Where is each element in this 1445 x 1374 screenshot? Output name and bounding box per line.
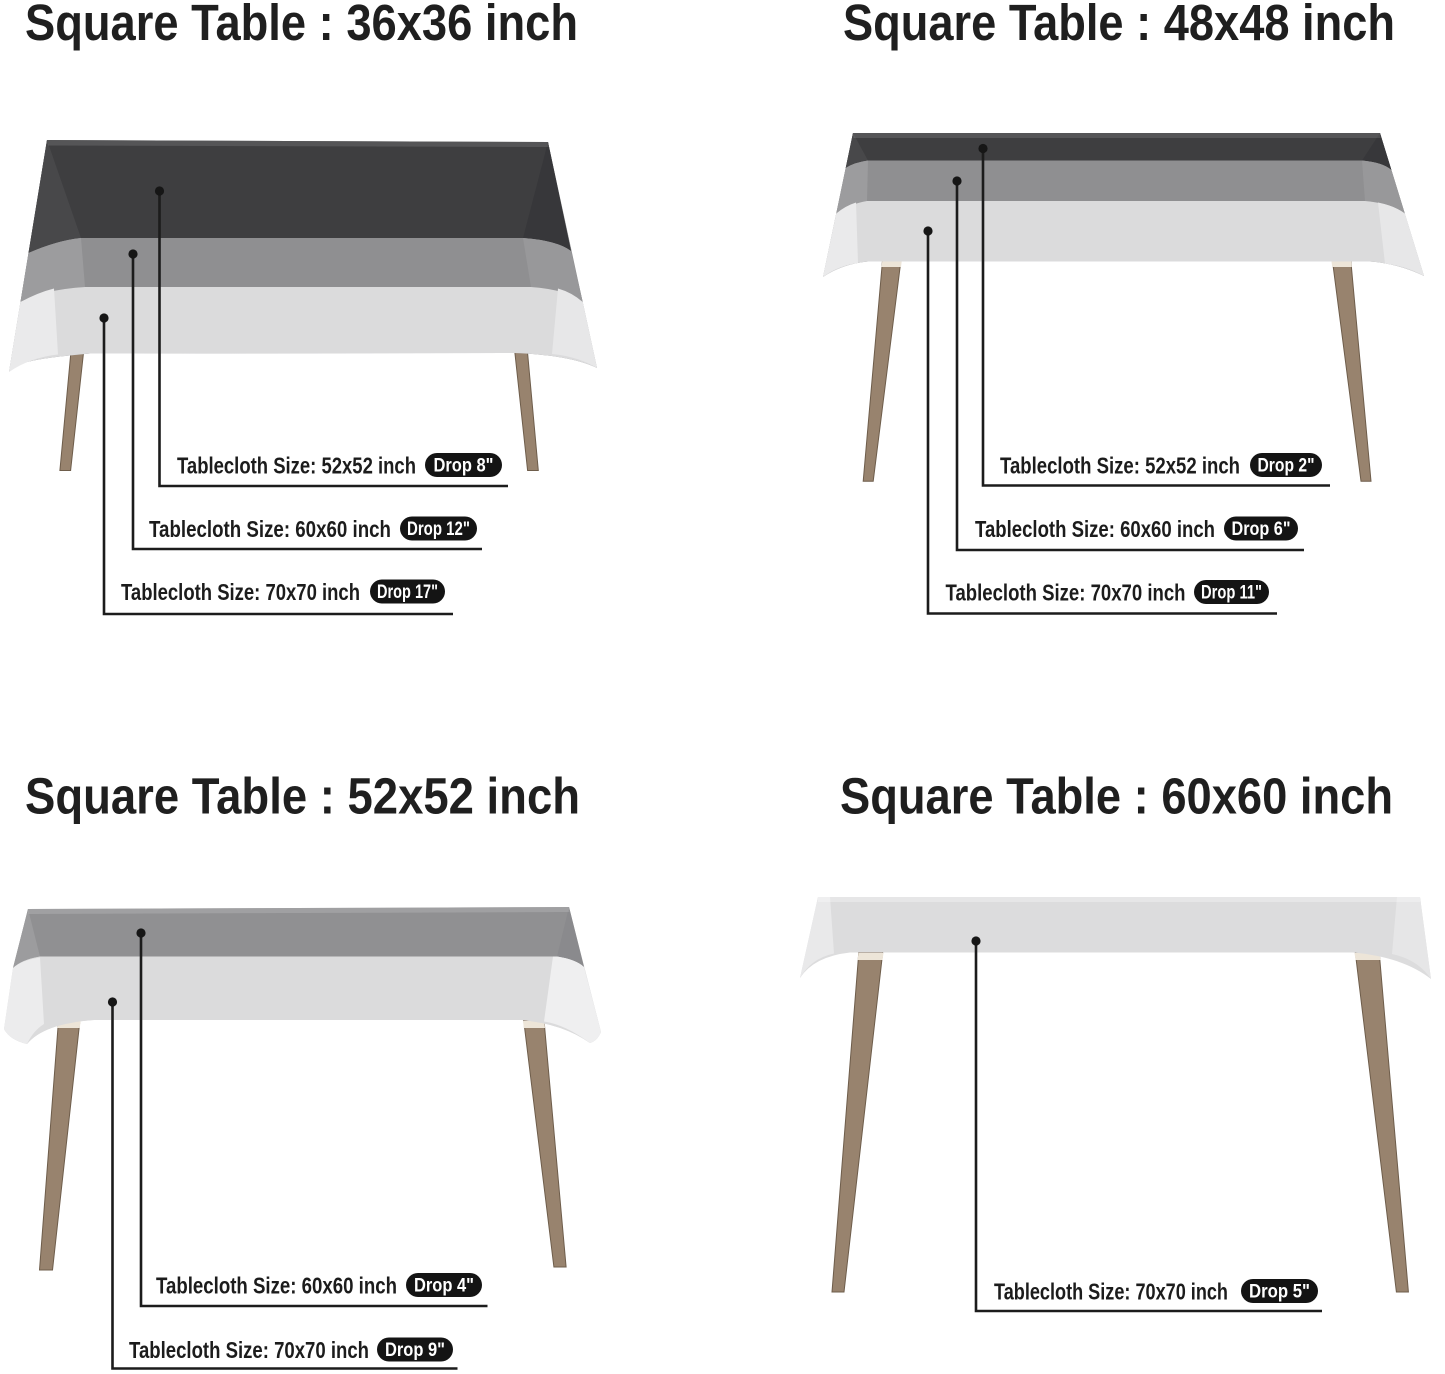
svg-text:Square Table : 36x36 inch: Square Table : 36x36 inch [25,0,578,51]
svg-text:Drop 9": Drop 9" [385,1340,445,1361]
svg-text:Tablecloth Size: 60x60 inch: Tablecloth Size: 60x60 inch [975,516,1215,542]
svg-text:Drop 12": Drop 12" [407,519,470,540]
svg-text:Drop 2": Drop 2" [1258,456,1315,477]
svg-text:Drop 5": Drop 5" [1249,1282,1310,1303]
svg-text:Drop 4": Drop 4" [414,1276,474,1297]
svg-text:Drop 8": Drop 8" [434,456,494,477]
svg-text:Tablecloth Size: 70x70 inch: Tablecloth Size: 70x70 inch [129,1337,369,1363]
svg-text:Tablecloth Size: 70x70 inch: Tablecloth Size: 70x70 inch [946,580,1186,606]
svg-text:Tablecloth Size: 60x60 inch: Tablecloth Size: 60x60 inch [149,516,391,542]
svg-text:Tablecloth Size: 60x60 inch: Tablecloth Size: 60x60 inch [156,1273,397,1299]
svg-text:Tablecloth Size: 70x70 inch: Tablecloth Size: 70x70 inch [121,579,360,605]
svg-text:Drop 11": Drop 11" [1201,583,1262,604]
svg-text:Tablecloth Size: 70x70 inch: Tablecloth Size: 70x70 inch [994,1279,1228,1305]
svg-text:Square Table : 52x52 inch: Square Table : 52x52 inch [25,768,580,825]
svg-text:Square Table : 60x60 inch: Square Table : 60x60 inch [840,768,1393,825]
svg-text:Tablecloth Size: 52x52 inch: Tablecloth Size: 52x52 inch [1000,453,1240,479]
svg-text:Square Table : 48x48 inch: Square Table : 48x48 inch [843,0,1395,51]
svg-text:Tablecloth Size: 52x52 inch: Tablecloth Size: 52x52 inch [177,453,416,479]
svg-text:Drop 17": Drop 17" [377,582,438,603]
svg-text:Drop 6": Drop 6" [1232,519,1291,540]
